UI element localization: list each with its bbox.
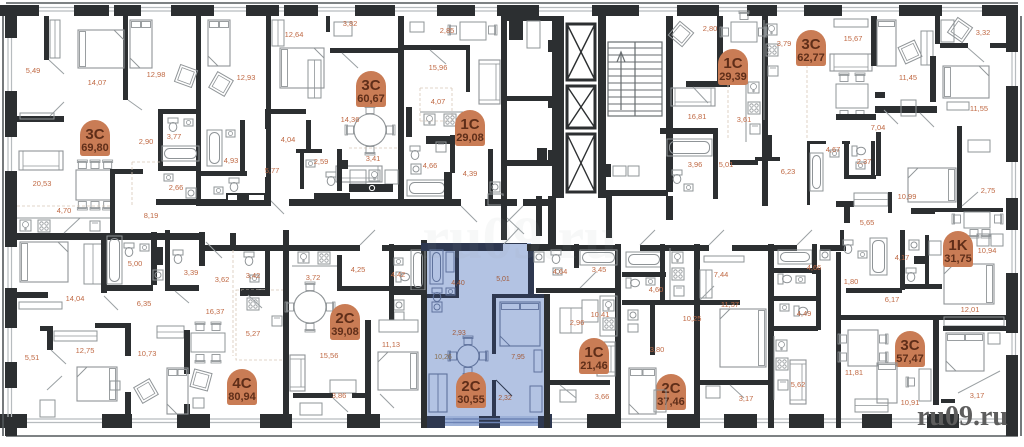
svg-text:5,01: 5,01 <box>719 160 734 169</box>
svg-text:1C: 1C <box>723 55 742 72</box>
svg-text:3C: 3C <box>900 337 919 354</box>
svg-text:2,90: 2,90 <box>139 137 154 146</box>
svg-text:ru09.ru: ru09.ru <box>423 205 618 271</box>
svg-text:3,72: 3,72 <box>306 273 321 282</box>
svg-text:6,35: 6,35 <box>137 299 152 308</box>
svg-text:2,80: 2,80 <box>703 24 718 33</box>
svg-text:4,07: 4,07 <box>431 97 446 106</box>
svg-text:2C: 2C <box>335 310 354 327</box>
svg-text:4,49: 4,49 <box>797 309 812 318</box>
svg-text:29,08: 29,08 <box>456 132 484 144</box>
svg-text:2,96: 2,96 <box>570 318 585 327</box>
svg-text:5,27: 5,27 <box>246 329 261 338</box>
svg-text:ru09.ru: ru09.ru <box>917 401 1008 432</box>
svg-text:4,17: 4,17 <box>895 253 910 262</box>
svg-text:5,01: 5,01 <box>496 276 510 283</box>
svg-text:4,42: 4,42 <box>391 270 406 279</box>
svg-text:16,81: 16,81 <box>688 112 707 121</box>
svg-text:3,62: 3,62 <box>215 275 230 284</box>
svg-text:3,17: 3,17 <box>970 391 985 400</box>
svg-text:7,95: 7,95 <box>511 354 525 361</box>
svg-text:1,80: 1,80 <box>844 277 859 286</box>
svg-text:10,99: 10,99 <box>898 192 917 201</box>
svg-text:3C: 3C <box>801 36 820 53</box>
svg-text:5,51: 5,51 <box>25 353 40 362</box>
svg-text:1C: 1C <box>584 344 603 361</box>
svg-text:4,40: 4,40 <box>451 280 465 287</box>
svg-text:4,67: 4,67 <box>826 145 841 154</box>
svg-text:3,79: 3,79 <box>777 39 792 48</box>
svg-text:16,37: 16,37 <box>206 307 225 316</box>
svg-text:11,81: 11,81 <box>845 368 863 377</box>
svg-text:2,37: 2,37 <box>857 157 872 166</box>
svg-text:2,66: 2,66 <box>169 183 184 192</box>
svg-text:4,04: 4,04 <box>281 135 296 144</box>
svg-text:4C: 4C <box>232 375 251 392</box>
svg-text:11,45: 11,45 <box>899 73 917 82</box>
svg-text:12,75: 12,75 <box>76 346 95 355</box>
svg-text:29,39: 29,39 <box>719 71 747 83</box>
svg-text:4,25: 4,25 <box>351 265 366 274</box>
svg-text:4,39: 4,39 <box>463 169 478 178</box>
svg-text:1K: 1K <box>948 237 967 254</box>
svg-text:10,41: 10,41 <box>591 310 610 319</box>
svg-text:4,70: 4,70 <box>57 206 72 215</box>
svg-text:2,85: 2,85 <box>440 26 455 35</box>
svg-text:10,25: 10,25 <box>683 314 702 323</box>
svg-text:12,93: 12,93 <box>237 73 256 82</box>
svg-text:5,77: 5,77 <box>265 166 280 175</box>
svg-text:11,37: 11,37 <box>721 300 739 309</box>
svg-text:7,44: 7,44 <box>714 270 729 279</box>
svg-text:12,01: 12,01 <box>961 305 980 314</box>
svg-text:1C: 1C <box>460 116 479 133</box>
svg-text:5,65: 5,65 <box>860 218 875 227</box>
svg-text:10,94: 10,94 <box>978 246 997 255</box>
svg-text:4,60: 4,60 <box>649 285 664 294</box>
svg-text:3,96: 3,96 <box>688 160 703 169</box>
svg-text:39,08: 39,08 <box>331 326 359 338</box>
svg-text:5,62: 5,62 <box>791 380 806 389</box>
svg-text:3,66: 3,66 <box>595 392 610 401</box>
svg-text:69,80: 69,80 <box>81 142 109 154</box>
svg-text:21,46: 21,46 <box>580 360 608 372</box>
svg-text:2C: 2C <box>661 380 680 397</box>
svg-text:6,23: 6,23 <box>781 167 796 176</box>
svg-text:10,73: 10,73 <box>138 349 157 358</box>
svg-text:5,49: 5,49 <box>26 66 41 75</box>
svg-text:11,55: 11,55 <box>970 104 988 113</box>
svg-text:3,61: 3,61 <box>737 115 752 124</box>
svg-text:5,00: 5,00 <box>128 259 143 268</box>
svg-text:57,47: 57,47 <box>896 353 924 365</box>
svg-text:12,98: 12,98 <box>147 70 166 79</box>
svg-text:3,39: 3,39 <box>184 268 199 277</box>
svg-text:10,26: 10,26 <box>434 354 452 361</box>
svg-text:4,66: 4,66 <box>423 161 438 170</box>
svg-text:37,46: 37,46 <box>657 396 685 408</box>
svg-text:14,07: 14,07 <box>88 78 107 87</box>
svg-text:8,19: 8,19 <box>144 211 159 220</box>
svg-text:15,56: 15,56 <box>320 351 339 360</box>
svg-text:30,55: 30,55 <box>457 394 485 406</box>
svg-text:14,36: 14,36 <box>341 115 360 124</box>
svg-text:60,67: 60,67 <box>357 93 385 105</box>
svg-text:3,86: 3,86 <box>332 391 347 400</box>
svg-text:4,93: 4,93 <box>224 156 239 165</box>
svg-text:2,59: 2,59 <box>314 157 329 166</box>
svg-text:3,77: 3,77 <box>167 132 182 141</box>
svg-text:12,64: 12,64 <box>285 30 304 39</box>
svg-text:15,96: 15,96 <box>429 63 448 72</box>
svg-text:3,32: 3,32 <box>976 28 991 37</box>
svg-text:3,80: 3,80 <box>650 345 665 354</box>
svg-text:31,75: 31,75 <box>944 253 972 265</box>
svg-text:15,67: 15,67 <box>844 34 863 43</box>
svg-text:3,42: 3,42 <box>246 271 261 280</box>
svg-text:14,04: 14,04 <box>66 294 85 303</box>
svg-text:20,53: 20,53 <box>33 179 52 188</box>
svg-text:2C: 2C <box>461 378 480 395</box>
svg-text:2,32: 2,32 <box>498 395 512 402</box>
svg-text:3,82: 3,82 <box>343 19 358 28</box>
svg-text:3,41: 3,41 <box>366 154 381 163</box>
svg-text:3C: 3C <box>361 77 380 94</box>
svg-text:80,94: 80,94 <box>228 391 256 403</box>
svg-text:6,17: 6,17 <box>885 295 900 304</box>
svg-text:2,75: 2,75 <box>981 186 996 195</box>
svg-text:7,04: 7,04 <box>871 123 886 132</box>
svg-text:3,17: 3,17 <box>739 394 754 403</box>
svg-text:62,77: 62,77 <box>797 52 825 64</box>
svg-text:2,93: 2,93 <box>452 330 466 337</box>
svg-text:3C: 3C <box>85 126 104 143</box>
svg-text:4,66: 4,66 <box>807 263 822 272</box>
svg-text:11,13: 11,13 <box>382 340 400 349</box>
